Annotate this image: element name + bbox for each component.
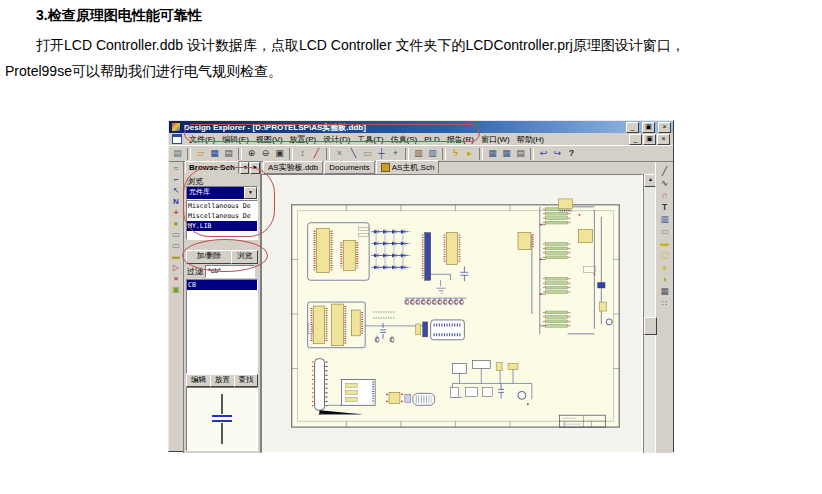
- capacitor-preview: [187, 388, 257, 450]
- move-icon[interactable]: +: [389, 147, 402, 160]
- library-listbox[interactable]: Miscellaneous De Miscellaneous De MY.LIB: [186, 200, 258, 240]
- menu-window[interactable]: 窗口(W): [481, 134, 510, 145]
- hierarchy-up-icon[interactable]: ▦: [486, 147, 499, 160]
- filled-rectangle-tool-icon[interactable]: ▬: [658, 238, 671, 249]
- browse-panel: Browse Sch ◄ ► 浏览 元件库 ▼ Miscellaneous De…: [184, 162, 261, 453]
- document-tabs: AS实验板.ddb Documents AS主机.Sch: [261, 162, 655, 174]
- minimize-button[interactable]: _: [626, 122, 639, 133]
- document-area: AS实验板.ddb Documents AS主机.Sch: [261, 162, 655, 453]
- toolbar-separator: [405, 148, 409, 160]
- net-label-icon[interactable]: N: [171, 197, 182, 207]
- place-button[interactable]: 放置: [210, 374, 235, 387]
- zoom-document-icon[interactable]: ▣: [273, 147, 286, 160]
- bezier-tool-icon[interactable]: ∿: [658, 178, 671, 189]
- active-document-icon: [172, 134, 182, 144]
- undo-icon[interactable]: ↩: [537, 147, 550, 160]
- part-icon[interactable]: ▭: [171, 230, 182, 240]
- toolbar-separator: [530, 148, 534, 160]
- section-heading: 3.检查原理图电性能可靠性: [36, 7, 202, 25]
- deselect-icon[interactable]: ┼: [375, 147, 388, 160]
- tab-as-board-ddb[interactable]: AS实验板.ddb: [263, 161, 323, 174]
- part-preview-pane: [186, 387, 258, 451]
- add-remove-button[interactable]: 加/删除: [186, 250, 232, 264]
- erc-lightning-icon[interactable]: ϟ: [449, 147, 462, 160]
- probe-icon[interactable]: ▸: [463, 147, 476, 160]
- menu-tools[interactable]: 工具(T): [357, 134, 383, 145]
- menu-bar: 文件(F) 编辑(E) 视图(V) 放置(P) 设计(D) 工具(T) 仿真(S…: [169, 133, 673, 145]
- library-icon[interactable]: ▥: [412, 147, 425, 160]
- edit-button[interactable]: 编辑: [186, 374, 211, 387]
- sheet-symbol-icon[interactable]: ▭: [171, 241, 182, 251]
- pcb-directive-icon[interactable]: ▣: [171, 285, 182, 295]
- app-icon: [171, 122, 181, 132]
- doc-minimize-button[interactable]: _: [629, 134, 642, 145]
- selection-box-icon[interactable]: ▭: [361, 147, 374, 160]
- redo-icon[interactable]: ↪: [551, 147, 564, 160]
- text-tool-icon[interactable]: T: [658, 202, 671, 213]
- design-explorer-window: Design Explorer - [D:\PROTELSP\AS实验板.ddb…: [168, 120, 674, 452]
- toolbar-separator: [238, 148, 242, 160]
- main-area: ≈ ⌐ ↖ N + ● ▭ ▭ ▬ ▷ × ▣ Browse Sch ◄ ► 浏…: [169, 162, 673, 453]
- browse-button[interactable]: 浏览: [231, 250, 258, 264]
- menu-pld[interactable]: PLD: [424, 135, 440, 144]
- up-down-hierarchy-icon[interactable]: ↕: [296, 147, 309, 160]
- component-item-selected[interactable]: CB: [187, 280, 257, 290]
- paragraph-line-1: 打开LCD Controller.ddb 设计数据库，点取LCD Control…: [36, 37, 685, 55]
- chevron-down-icon[interactable]: ▼: [244, 187, 257, 199]
- menu-design[interactable]: 设计(D): [323, 134, 350, 145]
- tab-scroll-left-button[interactable]: ◄: [240, 162, 250, 174]
- library-item[interactable]: Miscellaneous De: [187, 211, 257, 221]
- tab-as-host-sch[interactable]: AS主机.Sch: [376, 160, 440, 174]
- sheet-entry-icon[interactable]: ▬: [171, 252, 182, 262]
- toolbar-separator: [187, 148, 191, 160]
- library-item-selected[interactable]: MY.LIB: [187, 221, 257, 231]
- browse-sch-tab[interactable]: Browse Sch: [185, 161, 239, 174]
- zoom-in-icon[interactable]: ⊕: [245, 147, 258, 160]
- save-icon[interactable]: ▦: [208, 147, 221, 160]
- ellipse-tool-icon[interactable]: ●: [658, 262, 671, 273]
- browse-mode-value: 元件库: [187, 187, 244, 199]
- scrollbar-thumb[interactable]: [644, 317, 657, 335]
- toolbar-separator: [442, 148, 446, 160]
- pan-tool-icon[interactable]: ≈: [171, 164, 182, 174]
- left-tool-strip: ≈ ⌐ ↖ N + ● ▭ ▭ ▬ ▷ × ▣: [169, 162, 184, 453]
- filter-input[interactable]: *cb*: [205, 265, 255, 278]
- clipboard-icon[interactable]: ▤: [514, 147, 527, 160]
- schematic-drawing: [262, 175, 642, 452]
- component-listbox[interactable]: CB: [186, 279, 258, 374]
- pie-tool-icon[interactable]: ◖: [658, 274, 671, 285]
- filter-label: 过滤: [187, 266, 203, 277]
- explorer-toggle-icon[interactable]: ▤: [171, 147, 184, 160]
- grid-tool-icon[interactable]: ∷: [658, 298, 671, 309]
- cursor-tool-icon[interactable]: ↖: [171, 186, 182, 196]
- window-title: Design Explorer - [D:\PROTELSP\AS实验板.ddb…: [184, 122, 623, 133]
- arc-tool-icon[interactable]: ∩: [658, 190, 671, 201]
- library-item[interactable]: Miscellaneous De: [187, 201, 257, 211]
- open-document-icon[interactable]: ▱: [194, 147, 207, 160]
- pencil-icon[interactable]: ╱: [310, 147, 323, 160]
- restore-button[interactable]: ▣: [642, 122, 655, 133]
- junction-icon[interactable]: ●: [171, 219, 182, 229]
- menu-reports[interactable]: 报告(R): [447, 134, 474, 145]
- toolbar-separator: [289, 148, 293, 160]
- menu-help[interactable]: 帮助(H): [517, 134, 544, 145]
- find-button[interactable]: 查找: [234, 374, 258, 387]
- power-port-icon[interactable]: +: [171, 208, 182, 218]
- doc-close-button[interactable]: ×: [657, 134, 670, 145]
- paste-array-icon[interactable]: ▥: [658, 214, 671, 225]
- round-rectangle-tool-icon[interactable]: ▢: [658, 250, 671, 261]
- schematic-doc-icon: [381, 163, 390, 172]
- rectangle-tool-icon[interactable]: ▭: [658, 226, 671, 237]
- zoom-out-icon[interactable]: ⊖: [259, 147, 272, 160]
- title-bar: Design Explorer - [D:\PROTELSP\AS实验板.ddb…: [169, 121, 673, 133]
- no-erc-icon[interactable]: ×: [171, 274, 182, 284]
- toolbar-separator: [479, 148, 483, 160]
- close-button[interactable]: ×: [658, 122, 671, 133]
- wire-icon[interactable]: ╲: [347, 147, 360, 160]
- hierarchy-down-icon[interactable]: ▦: [500, 147, 513, 160]
- port-icon[interactable]: ▷: [171, 263, 182, 273]
- help-icon[interactable]: ?: [565, 147, 578, 160]
- browse-mode-dropdown[interactable]: 元件库 ▼: [186, 186, 258, 200]
- scrollbar-track[interactable]: [644, 187, 655, 453]
- menu-simulate[interactable]: 仿真(S): [391, 134, 418, 145]
- print-icon[interactable]: ▤: [222, 147, 235, 160]
- drawing-tool-strip: ╱ ∿ ∩ T ▥ ▭ ▬ ▢ ● ◖ ▦ ∷: [655, 162, 673, 453]
- menu-edit[interactable]: 编辑(E): [222, 134, 249, 145]
- tab-documents[interactable]: Documents: [324, 161, 374, 174]
- cutter-icon[interactable]: ×: [333, 147, 346, 160]
- browse-library-icon[interactable]: ▥: [426, 147, 439, 160]
- wiring-tools-icon[interactable]: ⌐: [171, 175, 182, 185]
- menu-place[interactable]: 放置(P): [290, 134, 317, 145]
- menu-file[interactable]: 文件(F): [189, 134, 215, 145]
- paragraph-line-2: Protel99se可以帮助我们进行电气规则检查。: [5, 63, 282, 81]
- graph-tool-icon[interactable]: ▦: [658, 286, 671, 297]
- tab-scroll-right-button[interactable]: ►: [250, 162, 260, 174]
- vertical-scrollbar[interactable]: ▲: [643, 174, 655, 453]
- schematic-canvas[interactable]: [261, 174, 643, 453]
- line-tool-icon[interactable]: ╱: [658, 166, 671, 177]
- doc-restore-button[interactable]: ▣: [643, 134, 656, 145]
- menu-view[interactable]: 视图(V): [256, 134, 283, 145]
- toolbar-separator: [326, 148, 330, 160]
